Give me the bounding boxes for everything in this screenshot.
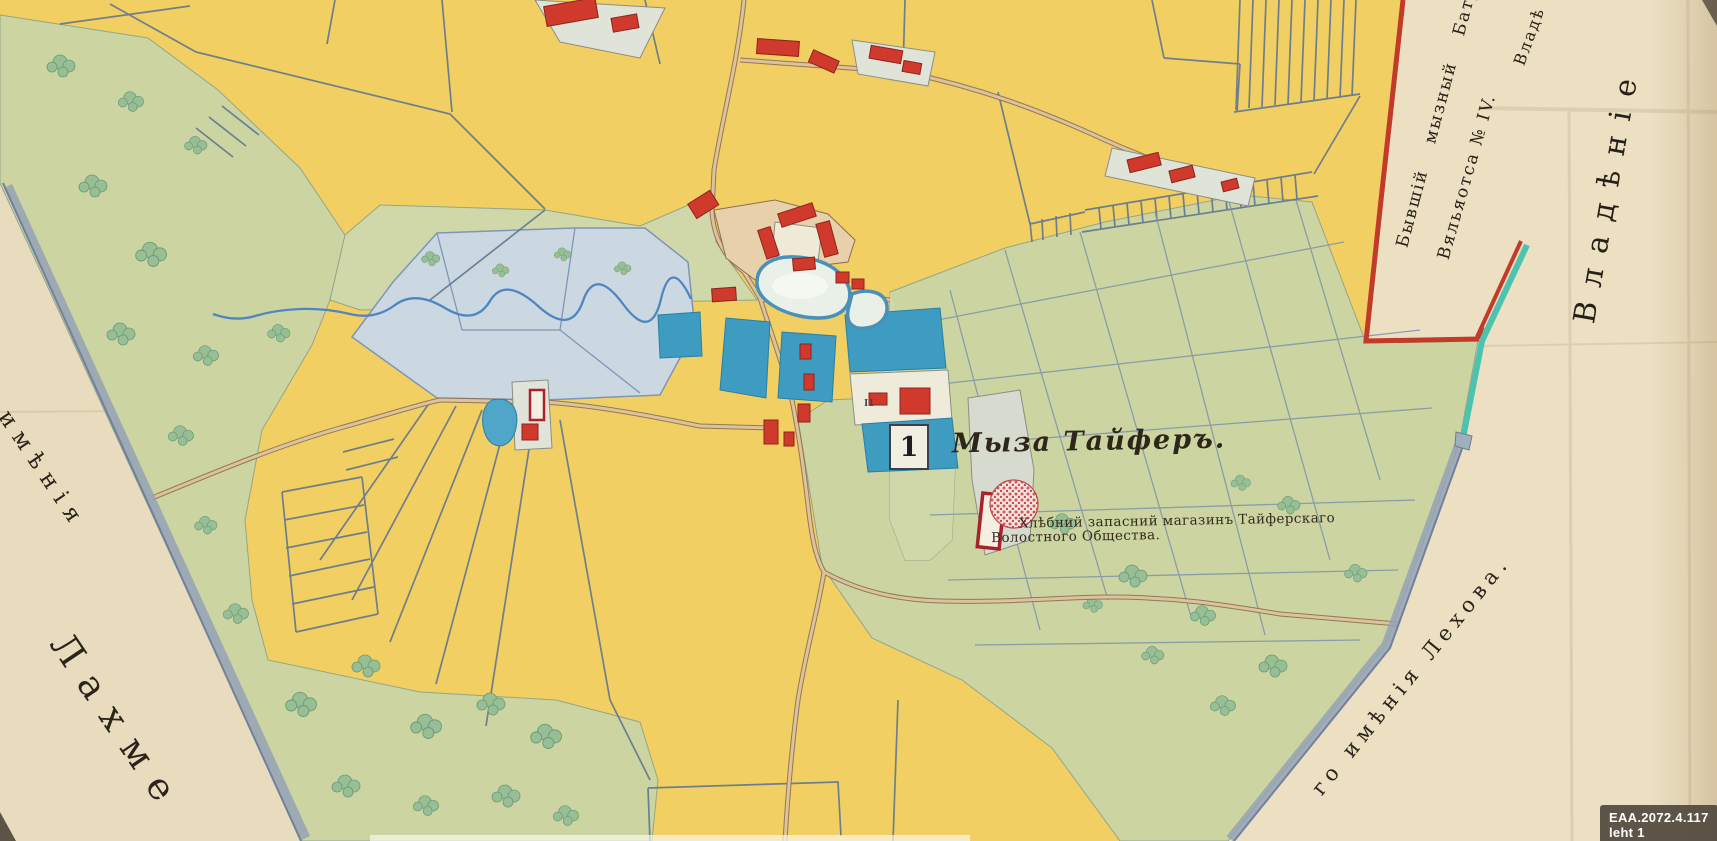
archive-reference-text: EAA.2072.4.117 leht 1 <box>1609 810 1709 840</box>
grain-store-caption: Хлѣбний запасний магазинъ Тайферскаго Во… <box>1005 511 1336 545</box>
manor-title: Мыза Тайферъ. <box>952 426 1227 459</box>
plot-number: 1 <box>900 432 919 463</box>
plot-mark: II <box>864 398 875 410</box>
scan-edge-sliver <box>370 835 970 841</box>
plot-number-box: 1 <box>889 424 929 470</box>
archive-reference-badge: EAA.2072.4.117 leht 1 <box>1600 805 1717 841</box>
right-edge-shadow <box>1650 0 1717 841</box>
map-sheet: Мыза Тайферъ. 1 II Хлѣбний запасний мага… <box>0 0 1717 841</box>
map-canvas[interactable] <box>0 0 1717 841</box>
